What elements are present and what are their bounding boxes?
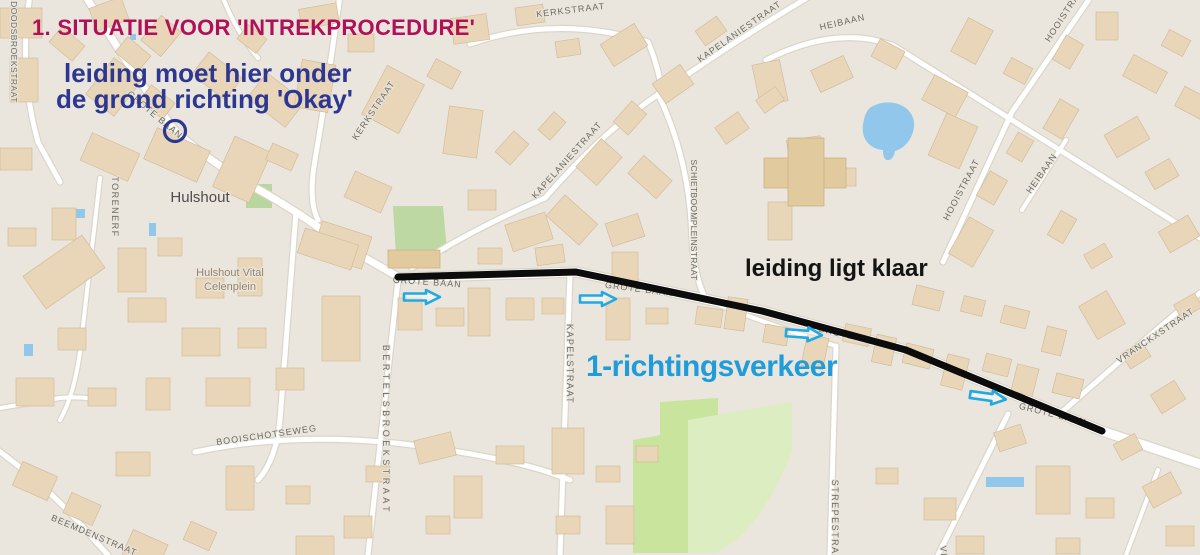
building — [542, 298, 564, 314]
building — [58, 328, 86, 350]
building — [646, 308, 668, 324]
street-label: KERKSTRAAT — [536, 1, 606, 19]
water-area — [149, 223, 156, 236]
building — [1036, 466, 1070, 514]
building — [296, 536, 334, 555]
building — [546, 195, 597, 245]
building — [1084, 243, 1113, 269]
building — [238, 328, 266, 348]
building — [552, 428, 584, 474]
street-label: VLOEIKENSSTRAAT — [938, 545, 957, 555]
building — [505, 212, 554, 252]
building — [496, 446, 524, 464]
building — [596, 466, 620, 482]
building — [8, 228, 36, 246]
building — [398, 298, 422, 330]
building — [344, 171, 392, 213]
building — [88, 388, 116, 406]
building — [276, 368, 304, 390]
building — [1086, 498, 1114, 518]
water-area — [986, 477, 1024, 487]
building — [414, 432, 457, 464]
street-label: KAPELSTRAAT — [565, 324, 575, 404]
building — [1079, 291, 1126, 340]
building — [1175, 86, 1200, 120]
building — [1052, 373, 1084, 399]
building — [876, 468, 898, 484]
building — [183, 521, 217, 551]
building — [948, 217, 993, 267]
building — [478, 248, 502, 264]
building — [811, 56, 854, 93]
building — [468, 288, 490, 336]
building — [182, 328, 220, 356]
building — [605, 213, 645, 246]
landmark-building — [388, 250, 440, 268]
building — [116, 452, 150, 476]
building — [1123, 54, 1168, 93]
building — [1158, 215, 1199, 253]
building — [956, 536, 984, 554]
street-label: TORENERF — [110, 176, 120, 237]
building — [960, 296, 985, 317]
building — [535, 244, 565, 266]
building — [1041, 326, 1067, 356]
water-area — [863, 102, 914, 160]
building — [1006, 132, 1034, 162]
slide-title: 1. SITUATIE VOOR 'INTREKPROCEDURE' — [32, 15, 475, 41]
street-label: BERTELSBROEKSTRAAT — [381, 345, 391, 515]
water-area — [24, 344, 33, 356]
map-slide: DOODSBROEKSTRAATTORENERFKERKSTRAATKERKST… — [0, 0, 1200, 555]
place-label: Celenplein — [204, 281, 256, 293]
building — [118, 248, 146, 292]
street-label: DOODSBROEKSTRAAT — [9, 1, 19, 103]
building — [1150, 380, 1185, 413]
place-label: Hulshout — [170, 189, 230, 206]
building — [286, 486, 310, 504]
building — [52, 208, 76, 240]
building — [924, 498, 956, 520]
building — [426, 516, 450, 534]
building — [344, 516, 372, 538]
building — [538, 112, 566, 141]
building — [982, 353, 1012, 377]
building — [158, 238, 182, 256]
building — [427, 59, 461, 90]
building — [206, 378, 250, 406]
green-area — [688, 402, 792, 553]
building — [146, 378, 170, 410]
street-label: SCHIETBOOMPLEINSTRAAT — [689, 160, 699, 281]
landmark-building — [788, 138, 824, 206]
building — [266, 143, 299, 171]
building — [80, 133, 140, 182]
street-label: HEIBAAN — [1024, 151, 1059, 195]
building — [506, 298, 534, 320]
building — [1056, 538, 1080, 554]
building — [436, 308, 464, 326]
building — [443, 106, 483, 158]
underground-note-line2: de grond richting 'Okay' — [56, 84, 353, 115]
pipeline-ready-note: leiding ligt klaar — [745, 255, 928, 283]
building — [1096, 12, 1118, 40]
building — [1047, 210, 1077, 243]
building — [768, 202, 792, 240]
one-way-traffic-note: 1-richtingsverkeer — [586, 350, 837, 384]
building — [912, 285, 944, 311]
building — [454, 476, 482, 518]
building — [556, 516, 580, 534]
building — [1104, 116, 1150, 158]
street-label: HEIBAAN — [819, 12, 867, 32]
building — [922, 75, 969, 118]
building — [128, 298, 166, 322]
building — [362, 65, 425, 133]
building — [695, 306, 723, 327]
building — [636, 446, 658, 462]
building — [1161, 29, 1191, 56]
street-label: VRANCKXSTRAAT — [1115, 306, 1196, 365]
building — [1145, 158, 1179, 189]
building — [951, 18, 994, 65]
building — [1000, 305, 1030, 329]
building — [1166, 526, 1194, 546]
street-label: STREPESTRAAT — [830, 480, 840, 555]
building — [495, 131, 529, 165]
building — [1003, 57, 1033, 84]
building — [0, 148, 32, 170]
building — [16, 378, 54, 406]
building — [628, 155, 672, 198]
building — [555, 38, 581, 57]
building — [468, 190, 496, 210]
place-label: Hulshout Vital — [196, 267, 264, 279]
building — [606, 298, 630, 340]
building — [1043, 99, 1079, 139]
building — [715, 112, 749, 144]
building — [606, 506, 634, 544]
building — [226, 466, 254, 510]
building — [322, 296, 360, 361]
